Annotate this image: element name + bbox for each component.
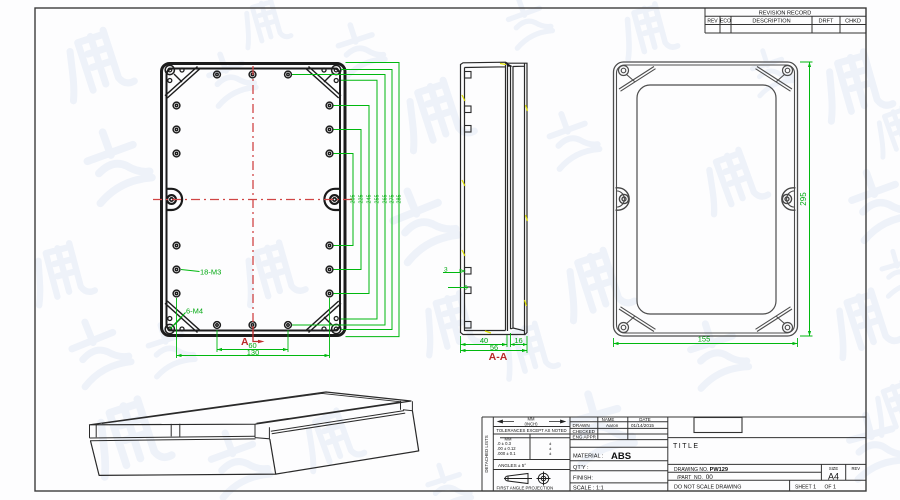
- svg-text:265: 265: [383, 195, 389, 204]
- svg-text:REV: REV: [851, 466, 860, 471]
- svg-text:ANGLES ± 5°: ANGLES ± 5°: [498, 463, 526, 468]
- svg-text:CHECKED: CHECKED: [573, 429, 596, 434]
- svg-text:6-M4: 6-M4: [186, 307, 203, 316]
- svg-text:245: 245: [367, 195, 373, 204]
- svg-text:DATE: DATE: [639, 417, 650, 422]
- svg-text:A4: A4: [828, 472, 839, 482]
- svg-text:QT'Y :: QT'Y :: [573, 465, 589, 471]
- svg-text:DESCRIPTION: DESCRIPTION: [752, 19, 790, 25]
- svg-text:MATERIAL :: MATERIAL :: [573, 454, 604, 460]
- svg-text:/PART NO. 00: /PART NO. 00: [677, 474, 713, 481]
- svg-text:REV: REV: [707, 19, 718, 25]
- svg-text:(INCH): (INCH): [524, 422, 538, 427]
- svg-text:225: 225: [359, 195, 365, 204]
- svg-text:A-A: A-A: [489, 351, 508, 363]
- svg-text:SHEET 1 OF 1: SHEET 1 OF 1: [795, 484, 836, 490]
- svg-text:285: 285: [397, 195, 403, 204]
- svg-text:ECO: ECO: [720, 19, 731, 25]
- svg-text:DETACHED LISTS: DETACHED LISTS: [484, 435, 489, 472]
- svg-text:NAME: NAME: [602, 417, 615, 422]
- svg-text:FIRST ANGLE PROJECTION: FIRST ANGLE PROJECTION: [497, 486, 554, 491]
- svg-text:155: 155: [698, 335, 711, 344]
- svg-text:205: 205: [351, 195, 357, 204]
- svg-text:CHKD: CHKD: [845, 19, 861, 25]
- svg-text:DRAWING NO. PW129: DRAWING NO. PW129: [674, 467, 728, 473]
- svg-text:SCALE : 1:1: SCALE : 1:1: [573, 486, 604, 492]
- svg-text:TOLERANCES EXCEPT AS NOTED: TOLERANCES EXCEPT AS NOTED: [496, 428, 566, 433]
- svg-text:FINISH:: FINISH:: [573, 476, 593, 482]
- svg-text:DRFT: DRFT: [819, 19, 834, 25]
- svg-text:ENG APPR: ENG APPR: [573, 434, 597, 439]
- svg-text:Aaron: Aaron: [606, 423, 619, 428]
- svg-text:255: 255: [375, 195, 381, 204]
- svg-text:ABS: ABS: [611, 451, 631, 462]
- svg-text:DRAWN: DRAWN: [573, 423, 590, 428]
- svg-text:01/14/2015: 01/14/2015: [631, 423, 654, 428]
- svg-text:295: 295: [799, 192, 808, 206]
- svg-text:16: 16: [514, 336, 522, 345]
- svg-text:275: 275: [390, 195, 396, 204]
- svg-text:SIZE: SIZE: [829, 466, 839, 471]
- svg-text:REVISION RECORD: REVISION RECORD: [759, 10, 812, 16]
- svg-text:130: 130: [247, 348, 260, 357]
- svg-text:TITLE: TITLE: [673, 443, 700, 450]
- svg-text:.000 ± 0.1: .000 ± 0.1: [497, 451, 516, 456]
- svg-text:5: 5: [464, 285, 468, 292]
- svg-text:DO NOT SCALE DRAWING: DO NOT SCALE DRAWING: [674, 484, 741, 490]
- svg-text:18-M3: 18-M3: [200, 268, 221, 277]
- svg-text:40: 40: [480, 336, 488, 345]
